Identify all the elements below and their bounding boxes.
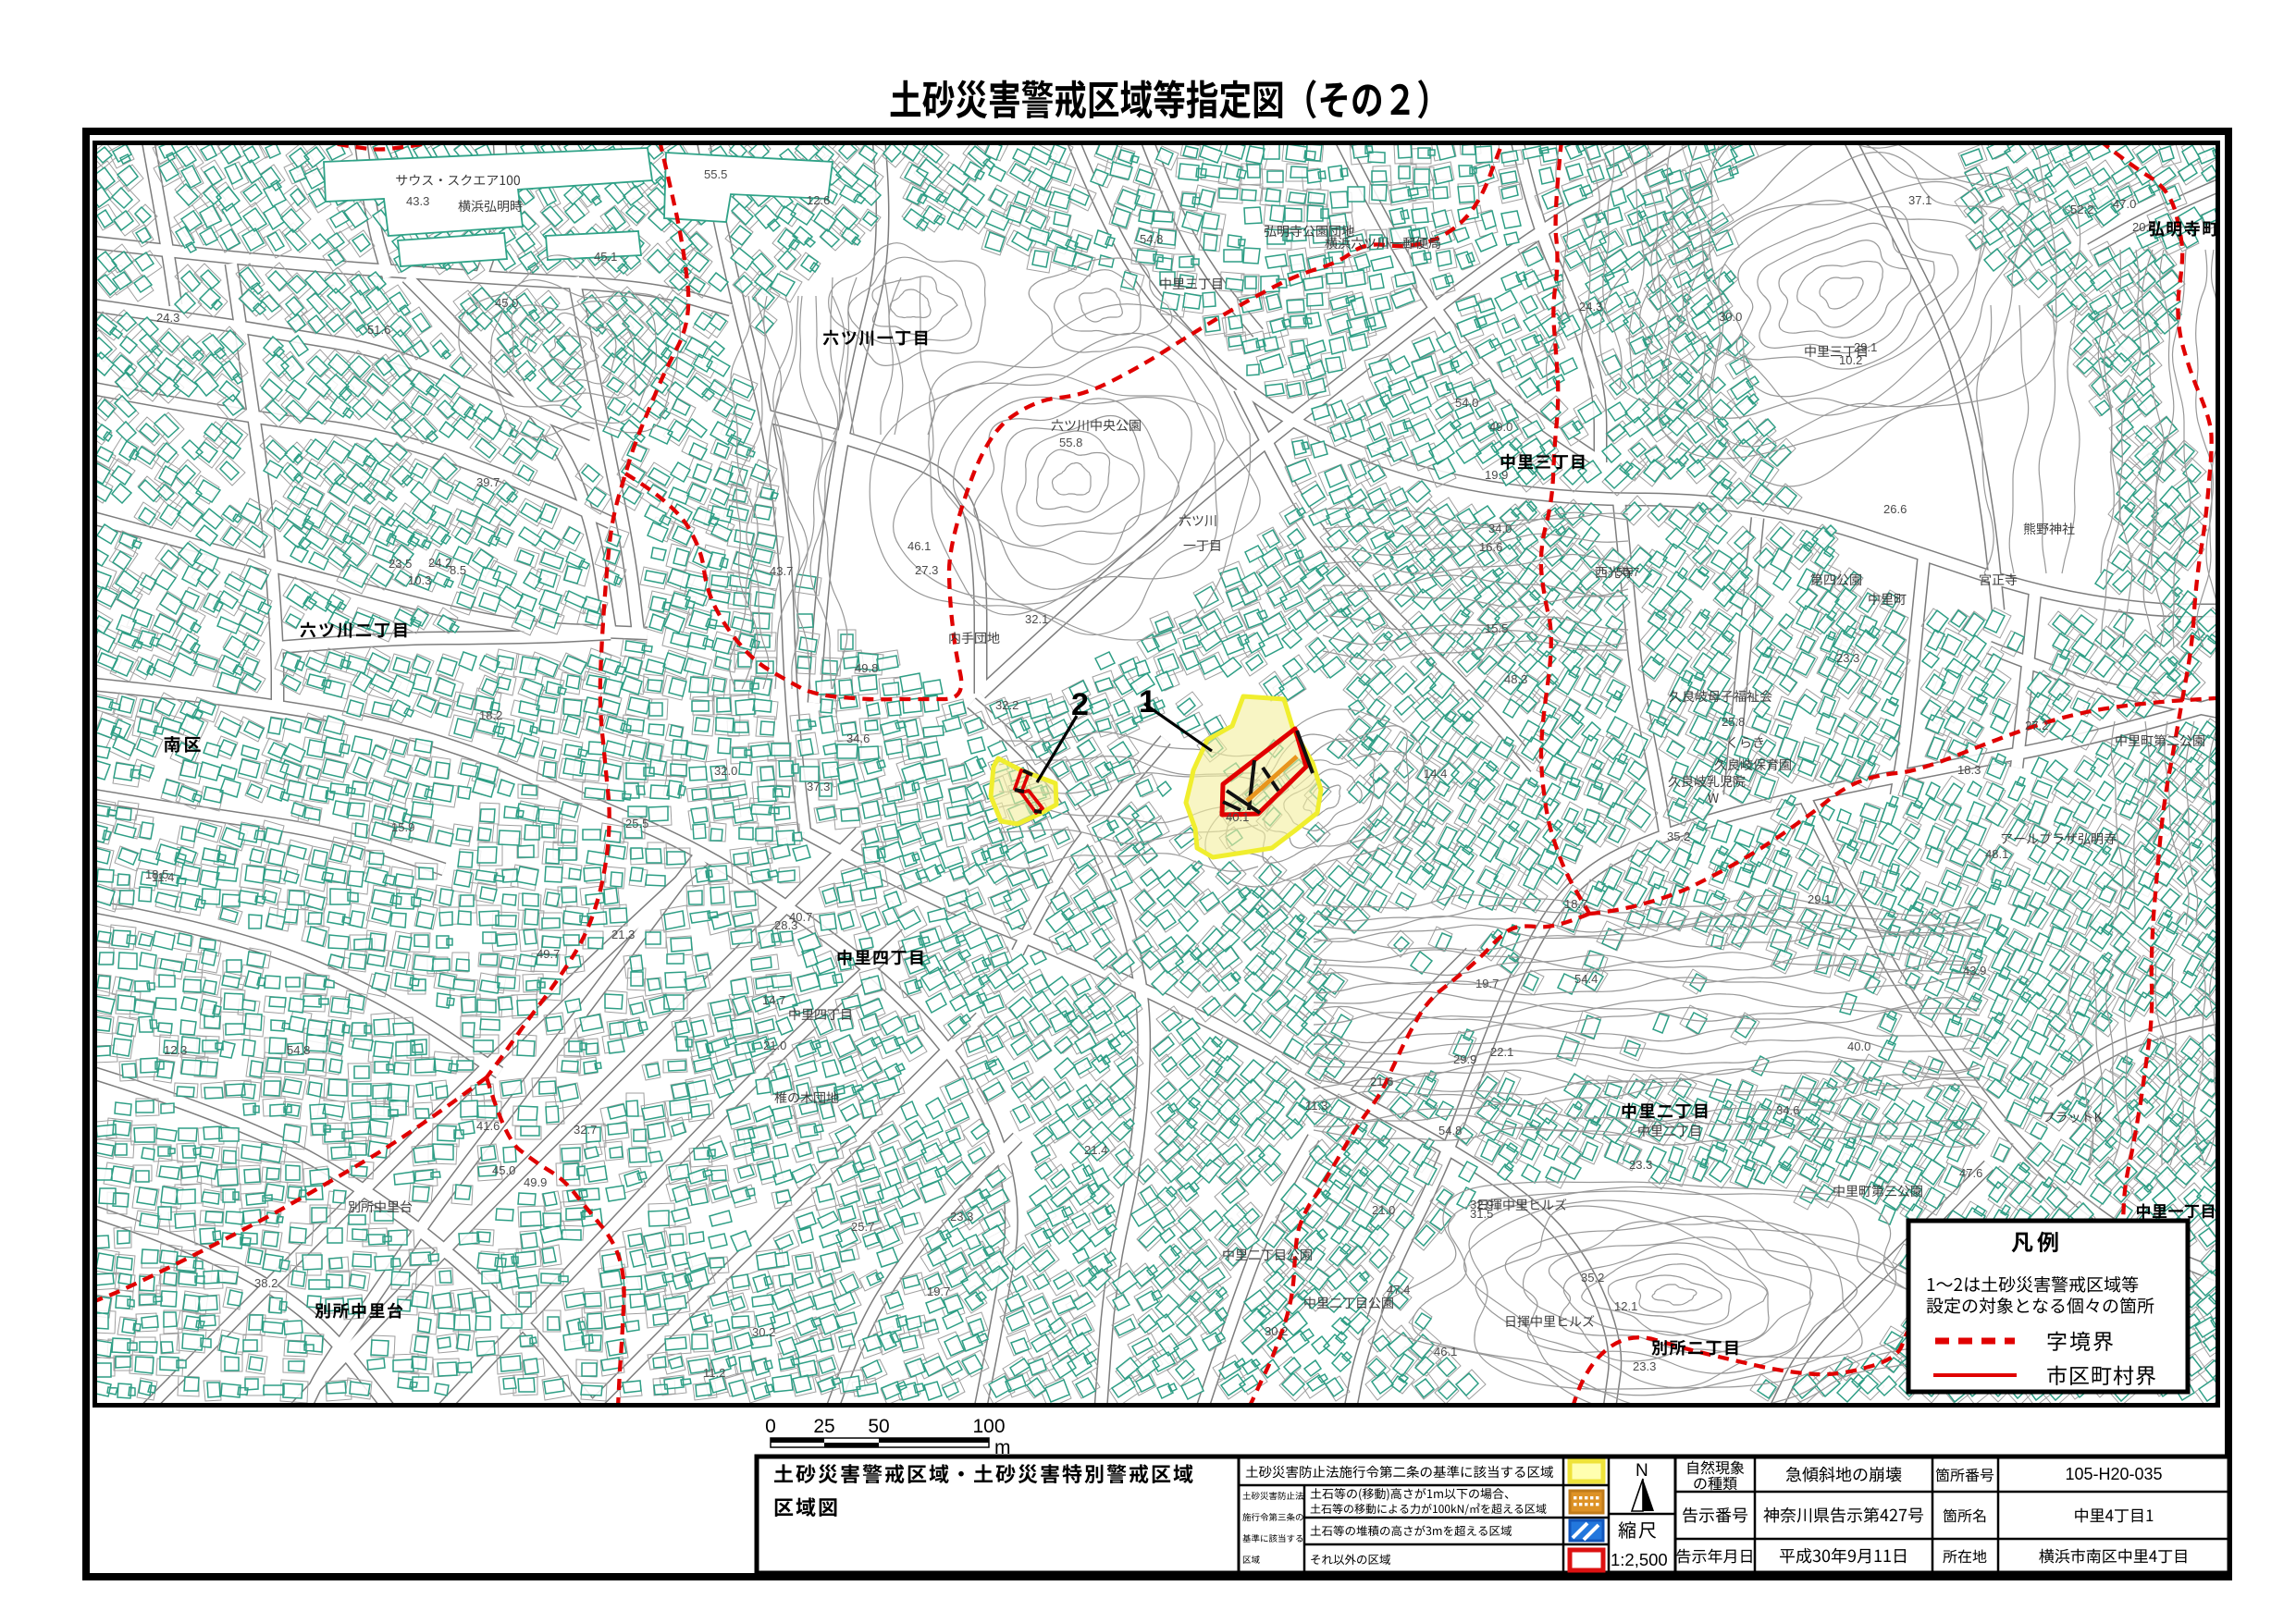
svg-text:34.6: 34.6 [846, 732, 870, 745]
svg-text:29.9: 29.9 [1453, 1052, 1476, 1066]
svg-text:55.8: 55.8 [1059, 436, 1082, 449]
svg-text:18.2: 18.2 [479, 708, 502, 722]
svg-text:2: 2 [1071, 687, 1089, 722]
svg-text:21.0: 21.0 [763, 1039, 786, 1052]
svg-text:27.2: 27.2 [2025, 719, 2048, 732]
svg-text:47.4: 47.4 [1387, 1283, 1410, 1297]
svg-text:10.3: 10.3 [408, 573, 431, 587]
svg-text:23.5: 23.5 [389, 557, 412, 571]
svg-text:25.7: 25.7 [851, 1220, 874, 1234]
svg-text:49.7: 49.7 [537, 947, 560, 961]
svg-text:16.6: 16.6 [1479, 540, 1502, 554]
svg-text:37.3: 37.3 [807, 780, 830, 793]
svg-text:29.1: 29.1 [1808, 892, 1831, 906]
svg-text:28.3: 28.3 [774, 918, 797, 932]
svg-text:32.0: 32.0 [714, 764, 737, 778]
svg-text:15.5: 15.5 [1485, 621, 1508, 635]
svg-text:47.0: 47.0 [2113, 197, 2136, 211]
svg-text:27.3: 27.3 [915, 563, 938, 577]
svg-text:30.2: 30.2 [1265, 1324, 1288, 1338]
svg-text:25: 25 [813, 1416, 834, 1437]
svg-text:19.7: 19.7 [1475, 977, 1499, 990]
svg-text:50: 50 [868, 1416, 889, 1437]
svg-text:49.0: 49.0 [1489, 420, 1512, 434]
svg-text:48.3: 48.3 [1504, 672, 1527, 686]
svg-text:1:2,500: 1:2,500 [1611, 1550, 1668, 1569]
svg-text:24.3: 24.3 [156, 311, 179, 325]
svg-text:32.2: 32.2 [995, 698, 1018, 712]
svg-text:40.1: 40.1 [1226, 810, 1249, 824]
svg-text:19.7: 19.7 [927, 1285, 950, 1298]
svg-text:14.7: 14.7 [762, 993, 785, 1007]
svg-text:22.1: 22.1 [1490, 1045, 1513, 1059]
svg-text:46.1: 46.1 [1434, 1345, 1457, 1359]
svg-text:49.9: 49.9 [524, 1175, 547, 1189]
svg-text:34.6: 34.6 [1776, 1103, 1799, 1117]
svg-text:18.7: 18.7 [1564, 897, 1587, 911]
svg-text:34.0: 34.0 [1488, 522, 1512, 535]
svg-text:12.3: 12.3 [164, 1043, 187, 1057]
svg-text:25.8: 25.8 [1722, 715, 1745, 729]
svg-text:52.2: 52.2 [2070, 203, 2093, 216]
svg-text:46.1: 46.1 [907, 539, 931, 553]
svg-text:23.3: 23.3 [1836, 651, 1859, 665]
svg-text:51.6: 51.6 [367, 323, 390, 337]
svg-text:21.3: 21.3 [611, 928, 635, 941]
svg-text:43.3: 43.3 [406, 194, 429, 208]
svg-text:45.0: 45.0 [492, 1163, 515, 1177]
svg-text:105-H20-035: 105-H20-035 [2065, 1465, 2162, 1483]
svg-text:54.0: 54.0 [1455, 396, 1478, 410]
svg-text:38.2: 38.2 [254, 1276, 278, 1290]
svg-text:54.4: 54.4 [1574, 972, 1598, 986]
svg-text:55.5: 55.5 [704, 167, 727, 181]
svg-text:100: 100 [972, 1416, 1005, 1437]
svg-text:18.5: 18.5 [145, 867, 168, 881]
svg-text:39.7: 39.7 [476, 475, 500, 489]
svg-text:N: N [1636, 1461, 1648, 1481]
svg-text:49.8: 49.8 [855, 661, 878, 675]
svg-text:23.3: 23.3 [1629, 1158, 1652, 1172]
svg-text:1: 1 [1139, 684, 1156, 719]
svg-text:54.8: 54.8 [1140, 232, 1163, 246]
svg-text:47.6: 47.6 [1959, 1166, 1982, 1180]
svg-text:35.2: 35.2 [1667, 830, 1690, 843]
svg-text:43.9: 43.9 [1963, 964, 1986, 977]
svg-text:35.2: 35.2 [1581, 1271, 1604, 1285]
svg-text:25.5: 25.5 [625, 817, 648, 830]
svg-text:41.6: 41.6 [476, 1119, 500, 1133]
svg-text:54.8: 54.8 [287, 1043, 310, 1057]
svg-text:23.3: 23.3 [950, 1210, 973, 1223]
svg-text:8.5: 8.5 [450, 563, 466, 577]
svg-text:12.1: 12.1 [1614, 1299, 1637, 1313]
svg-text:15.9: 15.9 [391, 820, 414, 834]
svg-text:37.1: 37.1 [1908, 193, 1932, 207]
svg-text:43.7: 43.7 [770, 564, 793, 578]
svg-text:24.2: 24.2 [428, 556, 451, 570]
svg-text:18.3: 18.3 [1957, 763, 1981, 777]
svg-text:26.6: 26.6 [1883, 502, 1907, 516]
svg-text:30.0: 30.0 [1719, 310, 1742, 324]
svg-text:48.1: 48.1 [1985, 847, 2008, 861]
svg-text:0: 0 [765, 1416, 776, 1437]
svg-text:11.3: 11.3 [1305, 1099, 1327, 1113]
svg-text:30.2: 30.2 [752, 1325, 775, 1339]
svg-text:32.7: 32.7 [574, 1123, 597, 1137]
svg-text:19.9: 19.9 [1485, 468, 1508, 482]
svg-text:45.0: 45.0 [495, 296, 518, 310]
svg-text:21.4: 21.4 [1084, 1143, 1107, 1157]
svg-text:54.8: 54.8 [1438, 1124, 1462, 1137]
svg-text:14.4: 14.4 [1424, 767, 1447, 781]
svg-text:12.6: 12.6 [807, 193, 830, 207]
svg-text:40.0: 40.0 [1847, 1039, 1870, 1053]
svg-text:11.2: 11.2 [703, 1366, 725, 1380]
svg-text:24.3: 24.3 [1579, 300, 1602, 314]
svg-text:23.3: 23.3 [1633, 1359, 1656, 1373]
svg-text:45.1: 45.1 [594, 250, 617, 264]
svg-text:21.6: 21.6 [1370, 1075, 1393, 1088]
svg-text:21.0: 21.0 [1372, 1203, 1395, 1217]
svg-text:32.1: 32.1 [1025, 612, 1048, 626]
